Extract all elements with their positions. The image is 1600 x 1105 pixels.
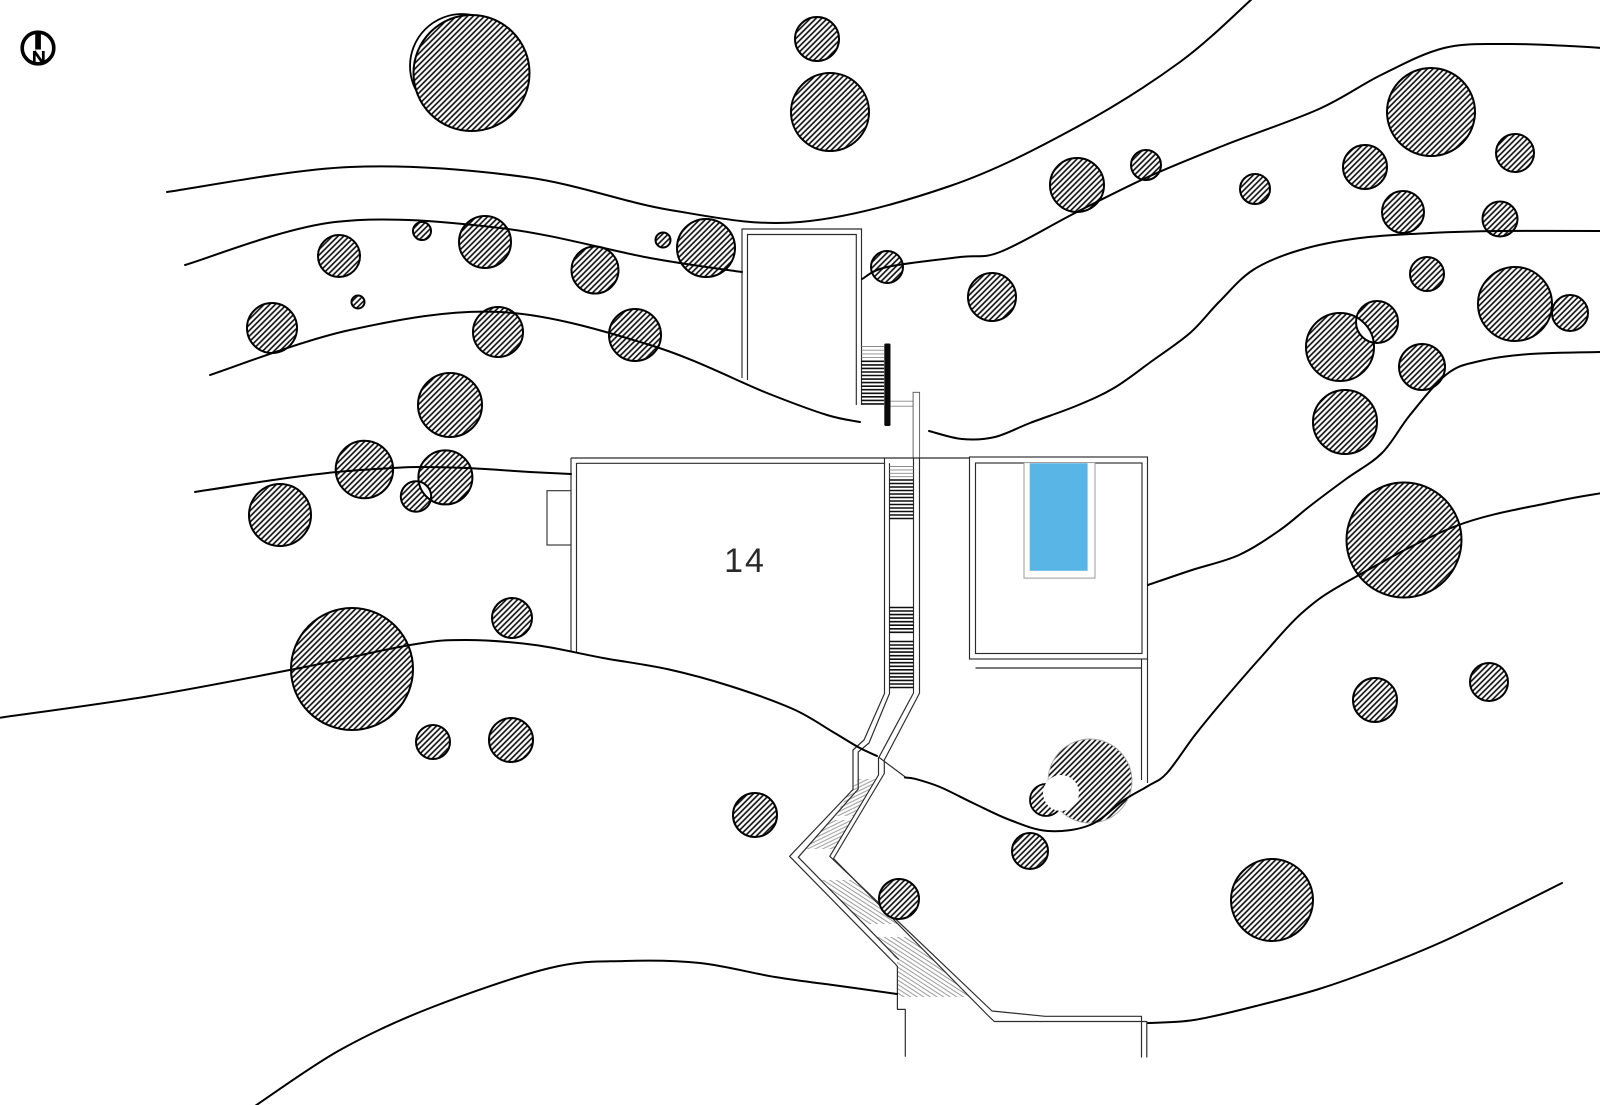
svg-text:14: 14 <box>724 542 766 580</box>
